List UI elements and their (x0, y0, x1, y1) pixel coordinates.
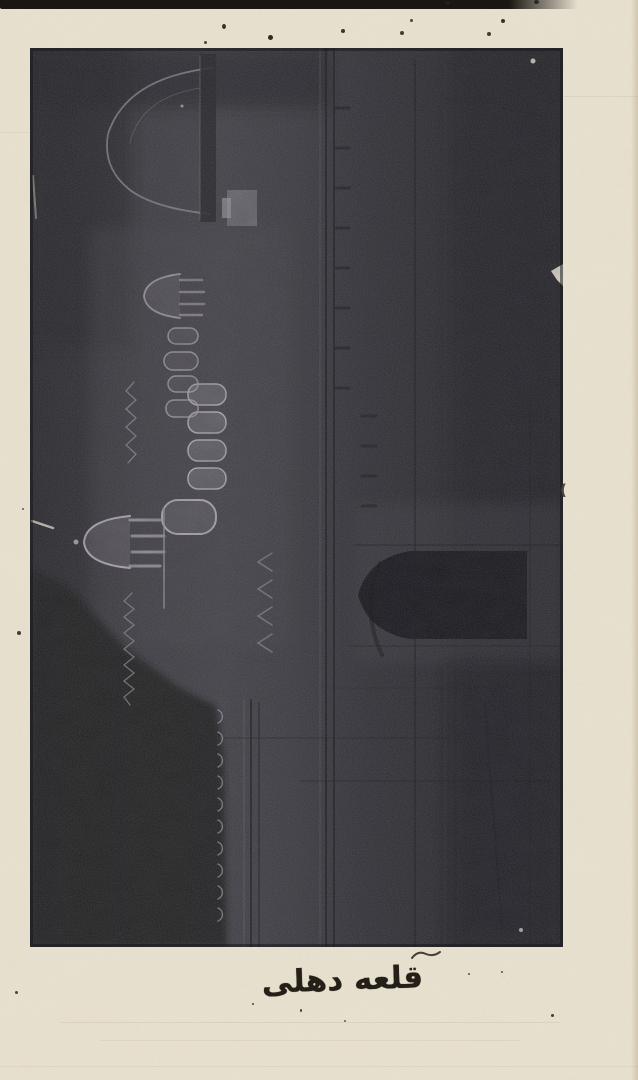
paper-fiber-line (0, 1066, 638, 1067)
ink-speck (17, 631, 21, 635)
ink-speck (204, 41, 207, 44)
ink-speck (22, 508, 24, 510)
ink-speck (501, 971, 503, 973)
halftone-blotch (30, 48, 563, 947)
ink-speck (15, 991, 18, 994)
ink-speck (445, 1, 450, 5)
ink-speck (551, 1014, 554, 1017)
ink-speck (501, 19, 505, 23)
ink-speck (341, 29, 345, 33)
ink-speck (222, 24, 226, 29)
photo-plate (30, 48, 563, 947)
ink-speck (487, 32, 491, 36)
page-right-edge-shade (631, 0, 638, 1080)
ink-speck (268, 35, 273, 40)
ink-speck (468, 973, 470, 975)
ink-speck (344, 1020, 346, 1022)
paper-fiber-line (100, 1040, 520, 1041)
fort-photo-illustration (30, 48, 563, 947)
book-page: ( قلعه دهلی (0, 0, 638, 1080)
photo-caption: قلعه دهلی (249, 951, 436, 1015)
ink-speck (410, 19, 413, 22)
paper-fiber-line (60, 1022, 560, 1023)
ink-speck (400, 31, 404, 35)
page-top-edge-shadow (0, 0, 578, 9)
ink-speck (534, 0, 539, 4)
margin-mark: ( (560, 481, 567, 499)
